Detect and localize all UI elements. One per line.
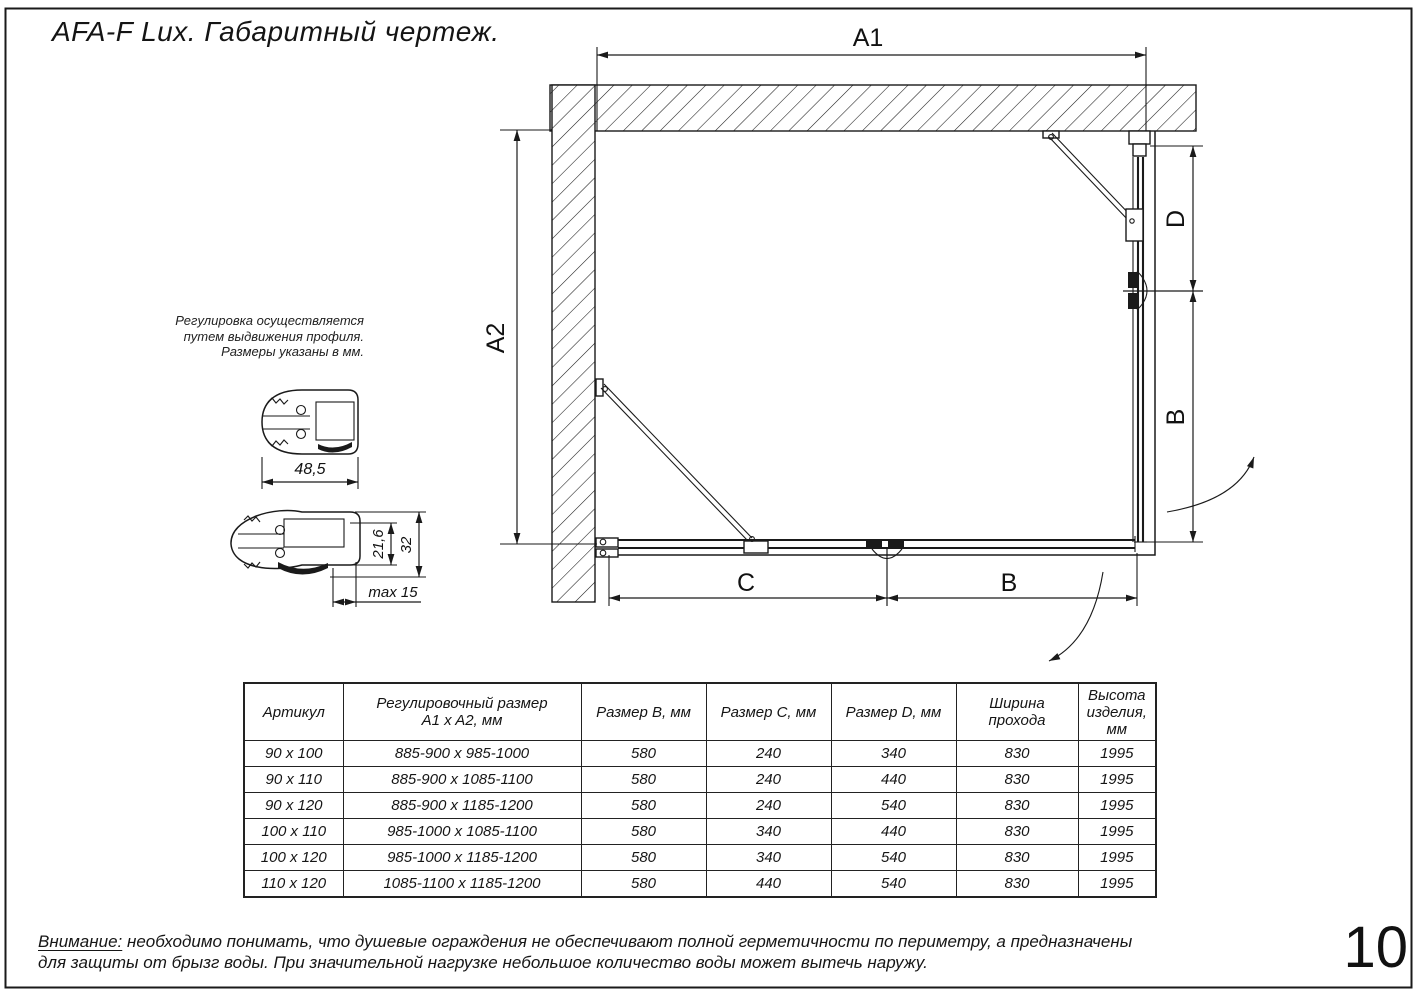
dimension-d-b-right: D B [1146,146,1203,542]
dimension-a2: A2 [482,130,597,544]
cell-pass: 830 [956,845,1078,871]
cell-c: 240 [706,793,831,819]
cell-height: 1995 [1078,845,1156,871]
cell-d: 540 [831,793,956,819]
cell-pass: 830 [956,819,1078,845]
dimension-b-right-label: B [1162,409,1190,426]
cell-d: 440 [831,767,956,793]
cell-pass: 830 [956,871,1078,898]
support-brace-right [1043,131,1143,241]
warning-label: Внимание: [38,932,122,951]
seal-strip [318,442,352,453]
cell-height: 1995 [1078,793,1156,819]
adjustment-note-line3: Размеры указаны в мм. [150,344,364,360]
profile-inner-height-label: 21,6 [370,529,387,560]
warning-text1: необходимо понимать, что душевые огражде… [122,932,1132,951]
cell-adjust: 885-900 x 1085-1100 [343,767,581,793]
warning-note: Внимание: необходимо понимать, что душев… [38,931,1168,973]
cell-adjust: 1085-1100 x 1185-1200 [343,871,581,898]
hinge-block [1126,209,1143,241]
table-row: 90 x 110 885-900 x 1085-1100 580 240 440… [244,767,1156,793]
cell-adjust: 885-900 x 985-1000 [343,741,581,767]
dimension-c-label: C [737,569,755,597]
dimension-b-bottom-label: B [1001,569,1018,597]
table-row: 100 x 120 985-1000 x 1185-1200 580 340 5… [244,845,1156,871]
cell-height: 1995 [1078,767,1156,793]
seal-strip [278,562,328,575]
cell-c: 340 [706,819,831,845]
col-header-size-b: Размер B, мм [581,683,706,741]
cell-article: 100 x 110 [244,819,343,845]
wall-profile-top [1129,131,1150,144]
col-header-size-d: Размер D, мм [831,683,956,741]
cell-c: 440 [706,871,831,898]
door-swing-arc-right [1167,457,1254,512]
profile-section-bottom: 21,6 32 max 15 [231,510,426,607]
col-header-adjust-size: Регулировочный размер A1 x A2, мм [343,683,581,741]
col-header-height: Высота изделия, мм [1078,683,1156,741]
table-row: 110 x 120 1085-1100 x 1185-1200 580 440 … [244,871,1156,898]
door-swing-arc-bottom [1049,572,1103,661]
cell-d: 340 [831,741,956,767]
cell-c: 240 [706,741,831,767]
cell-b: 580 [581,845,706,871]
cell-article: 100 x 120 [244,845,343,871]
dimension-a1: A1 [597,24,1146,131]
dimension-a2-label: A2 [482,323,510,354]
right-glass-panel [1129,131,1150,542]
cell-adjust: 985-1000 x 1085-1100 [343,819,581,845]
cell-height: 1995 [1078,871,1156,898]
page-title: AFA-F Lux. Габаритный чертеж. [52,16,500,48]
cell-article: 90 x 110 [244,767,343,793]
profile-max-label: max 15 [368,584,418,601]
cell-pass: 830 [956,793,1078,819]
profile-section-top: 48,5 [262,390,358,489]
top-wall [550,85,1196,131]
col-header-article: Артикул [244,683,343,741]
cell-adjust: 885-900 x 1185-1200 [343,793,581,819]
col-header-size-c: Размер C, мм [706,683,831,741]
left-wall [552,85,595,602]
cell-c: 340 [706,845,831,871]
profile-outer-height-label: 32 [398,536,415,553]
cell-b: 580 [581,819,706,845]
size-table-header-row: Артикул Регулировочный размер A1 x A2, м… [244,683,1156,741]
warning-line2: для защиты от брызг воды. При значительн… [38,952,1168,973]
profile-width-label: 48,5 [294,461,325,478]
cell-article: 90 x 120 [244,793,343,819]
wall-profile-bottom [596,538,618,547]
table-row: 100 x 110 985-1000 x 1085-1100 580 340 4… [244,819,1156,845]
cell-b: 580 [581,793,706,819]
dimension-d-label: D [1162,210,1190,228]
adjustment-note-line1: Регулировка осуществляется [150,313,364,329]
tray-outline [595,131,1155,555]
cell-pass: 830 [956,741,1078,767]
size-table: Артикул Регулировочный размер A1 x A2, м… [243,682,1157,898]
cell-pass: 830 [956,767,1078,793]
warning-line1: Внимание: необходимо понимать, что душев… [38,931,1168,952]
cell-d: 540 [831,871,956,898]
cell-c: 240 [706,767,831,793]
cell-article: 90 x 100 [244,741,343,767]
cell-b: 580 [581,741,706,767]
cell-adjust: 985-1000 x 1185-1200 [343,845,581,871]
cell-height: 1995 [1078,741,1156,767]
cell-b: 580 [581,871,706,898]
support-brace-left [596,379,768,553]
table-row: 90 x 100 885-900 x 985-1000 580 240 340 … [244,741,1156,767]
cell-d: 540 [831,845,956,871]
adjustment-note: Регулировка осуществляется путем выдвиже… [150,313,364,360]
cell-height: 1995 [1078,819,1156,845]
col-header-pass-width: Ширина прохода [956,683,1078,741]
bottom-glass-panel [596,536,1135,557]
handle-right-door [1123,271,1203,310]
cell-b: 580 [581,767,706,793]
cell-d: 440 [831,819,956,845]
adjustment-note-line2: путем выдвижения профиля. [150,329,364,345]
brace-clamp [744,541,768,553]
table-row: 90 x 120 885-900 x 1185-1200 580 240 540… [244,793,1156,819]
handle-bottom-door [866,540,904,606]
page-number: 10 [1332,914,1408,981]
dimension-a1-label: A1 [853,24,884,52]
cell-article: 110 x 120 [244,871,343,898]
dimension-c-b-bottom: C B [609,553,1137,606]
